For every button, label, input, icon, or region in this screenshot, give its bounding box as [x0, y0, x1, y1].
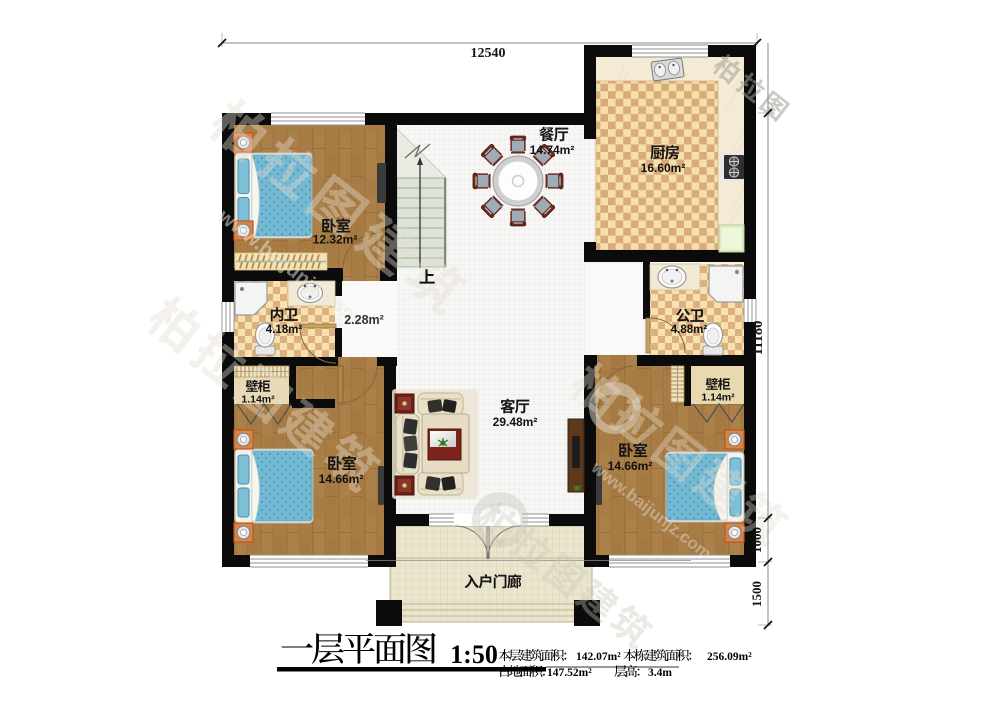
- svg-text:14.66m²: 14.66m²: [319, 472, 364, 486]
- svg-text:142.07m²: 142.07m²: [576, 651, 621, 663]
- svg-text:12.32m²: 12.32m²: [313, 233, 358, 247]
- svg-text:147.52m²: 147.52m²: [547, 667, 592, 679]
- svg-text:1000: 1000: [749, 527, 764, 553]
- svg-text:1.14m²: 1.14m²: [701, 392, 735, 404]
- svg-text:14.74m²: 14.74m²: [530, 143, 575, 157]
- svg-text:3.4m: 3.4m: [648, 667, 672, 679]
- svg-text:16.60m²: 16.60m²: [641, 161, 686, 175]
- svg-text:29.48m²: 29.48m²: [493, 415, 538, 429]
- svg-text:4.88m²: 4.88m²: [671, 324, 708, 336]
- svg-text:4.18m²: 4.18m²: [266, 324, 303, 336]
- svg-text:2.28m²: 2.28m²: [344, 313, 384, 327]
- svg-text:1.14m²: 1.14m²: [241, 394, 275, 406]
- svg-text:12540: 12540: [471, 46, 506, 61]
- svg-text:256.09m²: 256.09m²: [707, 651, 752, 663]
- svg-text:1:50: 1:50: [450, 640, 498, 669]
- svg-text:1500: 1500: [749, 581, 764, 607]
- svg-text:11180: 11180: [750, 321, 766, 356]
- svg-text:14.66m²: 14.66m²: [608, 459, 653, 473]
